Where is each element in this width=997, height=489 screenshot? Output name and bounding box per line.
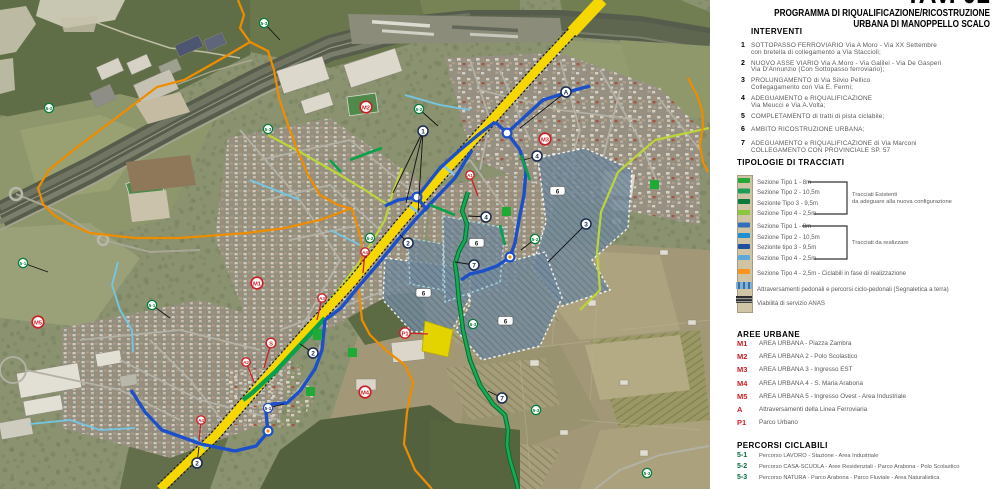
svg-text:3: 3 — [584, 222, 588, 229]
svg-text:1: 1 — [421, 129, 425, 136]
svg-text:5-1: 5-1 — [265, 406, 272, 411]
svg-text:5-3: 5-3 — [533, 408, 540, 413]
svg-text:5-1: 5-1 — [20, 261, 27, 266]
svg-text:2: 2 — [406, 241, 410, 248]
svg-text:5-1: 5-1 — [149, 303, 156, 308]
svg-text:5-2: 5-2 — [416, 107, 423, 112]
svg-text:5-3: 5-3 — [261, 21, 268, 26]
svg-text:5-3: 5-3 — [644, 471, 651, 476]
svg-text:A: A — [564, 90, 569, 97]
svg-text:A3: A3 — [319, 296, 325, 301]
svg-text:2: 2 — [311, 351, 315, 358]
svg-text:4: 4 — [535, 154, 539, 161]
svg-text:5-2: 5-2 — [46, 106, 53, 111]
svg-text:4: 4 — [484, 215, 488, 222]
svg-text:P1: P1 — [401, 331, 409, 337]
svg-text:A4: A4 — [362, 250, 368, 255]
svg-text:A4: A4 — [198, 418, 204, 423]
svg-text:S: S — [269, 341, 273, 347]
svg-text:7: 7 — [500, 396, 504, 403]
svg-text:5-2: 5-2 — [532, 237, 539, 242]
svg-text:M5: M5 — [34, 320, 43, 326]
svg-text:M3: M3 — [541, 137, 550, 143]
svg-text:2: 2 — [195, 461, 199, 468]
svg-text:M1: M1 — [253, 281, 262, 287]
svg-text:M2: M2 — [362, 105, 370, 111]
svg-text:A2: A2 — [243, 360, 249, 365]
svg-text:5-3: 5-3 — [470, 322, 477, 327]
svg-text:M4: M4 — [361, 390, 370, 396]
svg-text:A1: A1 — [467, 173, 473, 178]
svg-text:5-3: 5-3 — [265, 127, 272, 132]
svg-text:7: 7 — [472, 263, 476, 270]
svg-text:5-2: 5-2 — [367, 236, 374, 241]
